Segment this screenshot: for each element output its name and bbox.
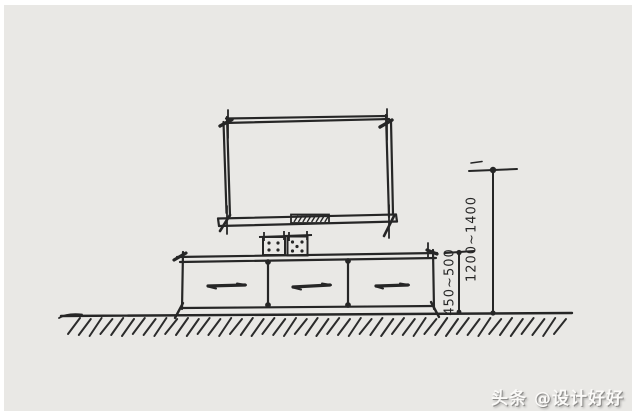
cabinet-height-dimension-label: 450~500 [443, 248, 458, 316]
watermark-text: 头条 @设计好好 [491, 384, 624, 409]
tv-sketch [218, 109, 397, 238]
image-frame: 450~500 1200~1400 头条 @设计好好 [0, 0, 636, 418]
decor-boxes [259, 231, 312, 256]
tv-height-dimension-label: 1200~1400 [465, 196, 480, 282]
floor-hatch [68, 318, 566, 336]
furniture-elevation-sketch [0, 0, 636, 418]
cabinet-handles [208, 284, 409, 290]
